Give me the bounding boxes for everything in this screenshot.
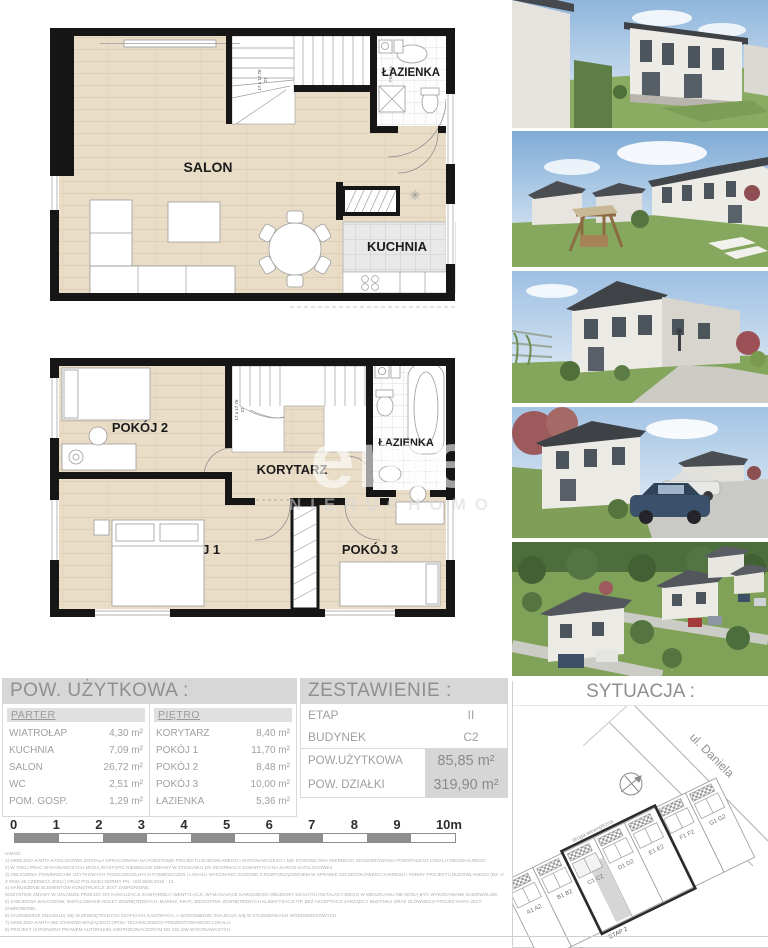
usable-area-section: POW. UŻYTKOWA : PARTER WIATROŁAP4,30 m² … bbox=[2, 678, 297, 817]
scale-bar-segments bbox=[14, 833, 456, 843]
room-label-salon: SALON bbox=[184, 159, 233, 175]
catalog-card: 17 x 17,76 27 PRALKA ŁAZIENKA KUCHNIA bbox=[0, 0, 768, 948]
parter-subheader: PARTER bbox=[7, 708, 145, 722]
stairs-tread-label: 27 bbox=[263, 77, 268, 83]
note-line: 2) W TOKU PRAC WYKONAWCZYCH MOGĄ WYSTĄPI… bbox=[5, 865, 507, 872]
render-photo-street-cars bbox=[512, 407, 768, 538]
room-label-kuchnia: KUCHNIA bbox=[367, 239, 428, 254]
area-row: KUCHNIA7,09 m² bbox=[9, 742, 143, 759]
render-photo-rear-garden bbox=[512, 0, 768, 128]
note-line: 8) PROJEKT CHRONIONY PRAWEM AUTORSKIM, N… bbox=[5, 927, 507, 934]
room-label-korytarz: KORYTARZ bbox=[257, 462, 328, 477]
area-column-parter: PARTER WIATROŁAP4,30 m² KUCHNIA7,09 m² S… bbox=[3, 704, 149, 816]
room-label-pokoj2: POKÓJ 2 bbox=[112, 420, 168, 435]
render-photo-garden-pergola bbox=[512, 131, 768, 267]
area-row: SALON26,72 m² bbox=[9, 759, 143, 776]
room-label-lazienka-f2: ŁAZIENKA bbox=[378, 437, 434, 449]
summary-table: ETAPII BUDYNEKC2 POW.UŻYTKOWA85,85 m² PO… bbox=[300, 704, 508, 798]
floorplan-upper: 17 x 17,76 27 ŁAZIENKA KORYTARZ POKÓJ 2 … bbox=[40, 350, 465, 628]
pietro-subheader: PIĘTRO bbox=[154, 708, 292, 722]
north-arrow-icon bbox=[620, 773, 642, 795]
area-row: POM. GOSP.1,29 m² bbox=[9, 793, 143, 810]
street-label: ul. Daniela bbox=[687, 730, 737, 780]
situation-section: SYTUACJA : ul. Daniela dro bbox=[512, 681, 768, 948]
usable-area-table: PARTER WIATROŁAP4,30 m² KUCHNIA7,09 m² S… bbox=[2, 704, 297, 817]
note-line: 6) GAZOMIERZE ZNAJDUJĄ SIĘ W ZEWNĘTRZNYC… bbox=[5, 913, 507, 920]
note-line: 1) NINIEJSZA KARTA KATALOGOWA ZOSTAŁA OP… bbox=[5, 858, 507, 865]
room-label-pokoj3: POKÓJ 3 bbox=[342, 542, 398, 557]
area-row: ŁAZIENKA5,36 m² bbox=[156, 793, 290, 810]
usable-area-title: POW. UŻYTKOWA : bbox=[2, 678, 297, 704]
summary-row-pow-dzialki: POW. DZIAŁKI319,90 m² bbox=[301, 773, 507, 797]
area-row: WIATROŁAP4,30 m² bbox=[9, 725, 143, 742]
note-line: 5) ZABUDOWA BALKONÓW, INSTALOWANIE ROLET… bbox=[5, 899, 507, 913]
area-row: POKÓJ 111,70 m² bbox=[156, 742, 290, 759]
situation-title: SYTUACJA : bbox=[513, 681, 768, 706]
site-plan: ul. Daniela droga wewnętrzna bbox=[513, 706, 768, 948]
area-row: KORYTARZ8,40 m² bbox=[156, 725, 290, 742]
legal-notes: UWAGI: 1) NINIEJSZA KARTA KATALOGOWA ZOS… bbox=[5, 851, 507, 934]
room-label-lazienka-f1: ŁAZIENKA bbox=[382, 67, 440, 79]
area-column-pietro: PIĘTRO KORYTARZ8,40 m² POKÓJ 111,70 m² P… bbox=[149, 704, 296, 816]
area-row: POKÓJ 310,00 m² bbox=[156, 776, 290, 793]
stairs-tread-label-f2: 27 bbox=[240, 407, 245, 413]
render-photo-aerial-estate bbox=[512, 542, 768, 676]
summary-section: ZESTAWIENIE : ETAPII BUDYNEKC2 POW.UŻYTK… bbox=[300, 678, 508, 798]
area-row: WC2,51 m² bbox=[9, 776, 143, 793]
area-row: POKÓJ 28,48 m² bbox=[156, 759, 290, 776]
summary-row-etap: ETAPII bbox=[301, 704, 507, 726]
floorplan-ground: 17 x 17,76 27 PRALKA ŁAZIENKA KUCHNIA bbox=[40, 14, 465, 319]
summary-row-pow-uzytkowa: POW.UŻYTKOWA85,85 m² bbox=[301, 749, 507, 773]
summary-row-budynek: BUDYNEKC2 bbox=[301, 726, 507, 748]
stairs-dim-label-f2: 17 x 17,76 bbox=[234, 399, 239, 421]
summary-title: ZESTAWIENIE : bbox=[300, 678, 508, 704]
render-photo-front-path bbox=[512, 271, 768, 403]
notes-header: UWAGI: bbox=[5, 851, 507, 858]
note-line: 3) OBLICZENIA POWIERZCHNI UŻYTKOWYCH POS… bbox=[5, 872, 507, 886]
bottom-divider bbox=[0, 936, 768, 937]
stairs-dim-label: 17 x 17,76 bbox=[257, 69, 262, 91]
scale-bar: 01 23 45 67 89 10m bbox=[10, 817, 462, 843]
scale-tick-labels: 01 23 45 67 89 10m bbox=[10, 817, 462, 832]
note-line: 7) NINIEJSZA KARTA NIE STANOWI WIĄŻĄCEGO… bbox=[5, 920, 507, 927]
